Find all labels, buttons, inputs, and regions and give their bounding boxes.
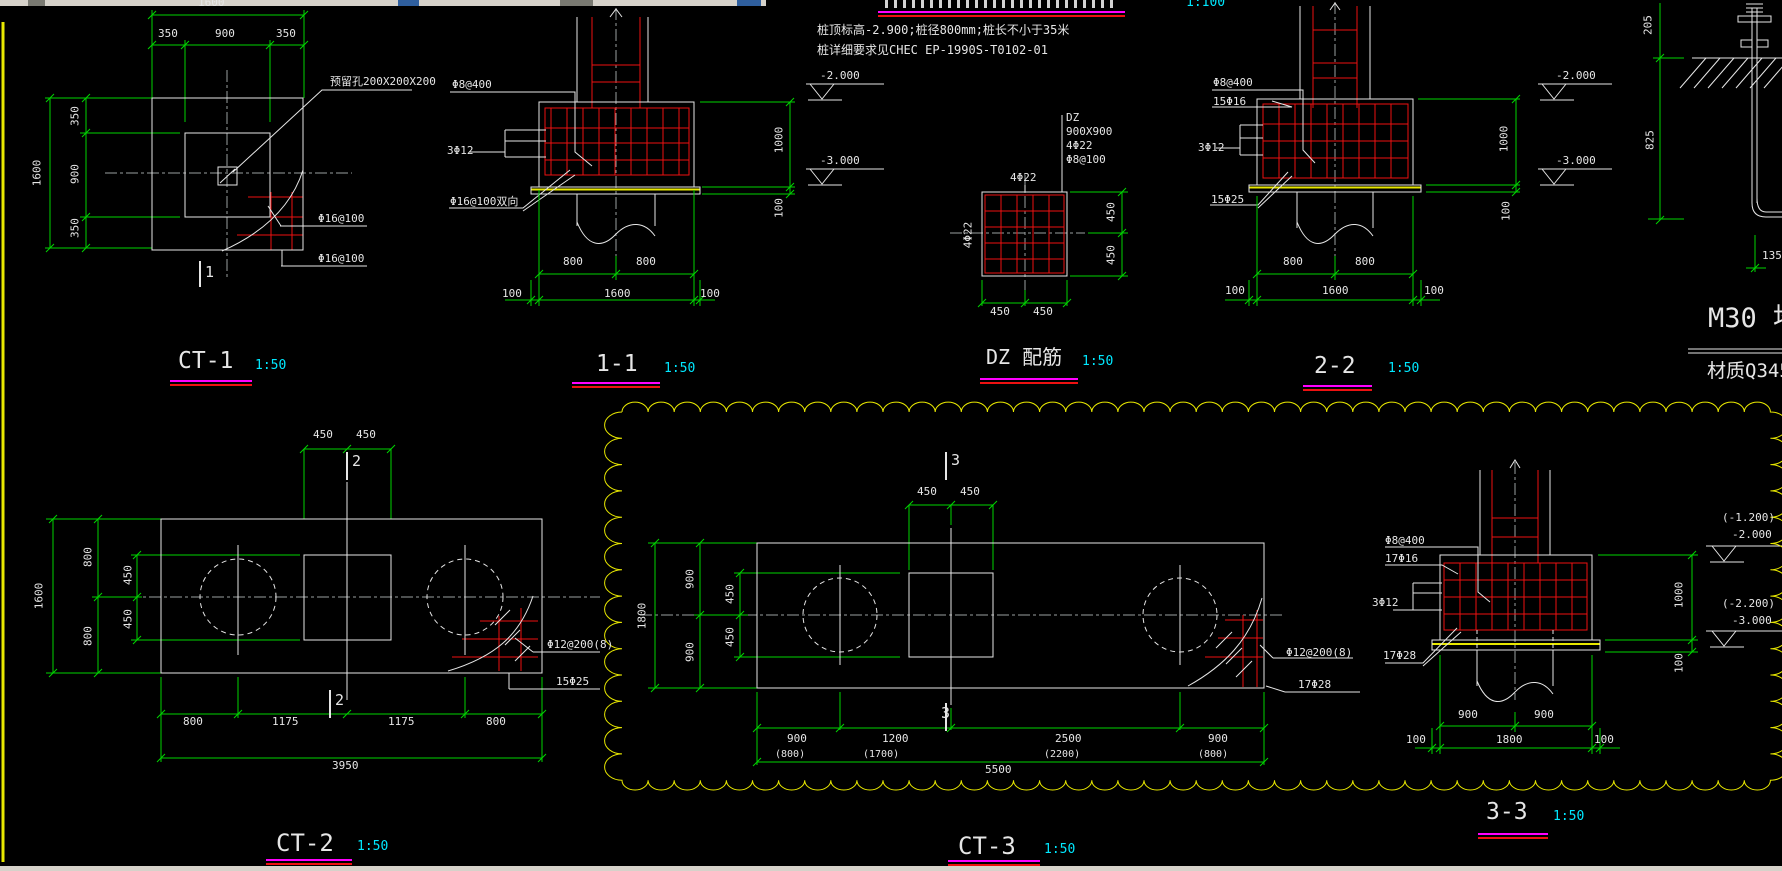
s22-dim-100b: 100	[1424, 285, 1444, 296]
ct3-dim-left-900a: 900	[685, 569, 696, 589]
ct2-dim-top-450b: 450	[356, 429, 376, 440]
bolt-dim-205: 205	[1643, 15, 1654, 35]
s22-label-bottom: 15Φ25	[1211, 194, 1244, 205]
s33-dim-100r: 100	[1674, 653, 1685, 673]
ct3-scale: 1:50	[1044, 843, 1075, 856]
ct3-dim-top-450b: 450	[960, 486, 980, 497]
ct3-section-top: 3	[951, 453, 960, 468]
dz-title: DZ 配筋	[986, 347, 1062, 367]
notes-note-line-1: 桩顶标高-2.900;桩径800mm;桩长不小于35米	[817, 24, 1069, 36]
dz-top-bars: 4Φ22	[1010, 172, 1037, 183]
ct1-section-mark: 1	[205, 265, 214, 280]
dz-left-bars: 4Φ22	[963, 222, 974, 249]
s11-dim-1000: 1000	[774, 127, 785, 154]
ct3-dim-800p2: (800)	[1198, 750, 1228, 760]
dz-callout-bars: 4Φ22	[1066, 140, 1093, 151]
s22-dim-100a: 100	[1225, 285, 1245, 296]
s11-title: 1-1	[596, 353, 638, 376]
ct1-label-hole: 预留孔200X200X200	[330, 76, 436, 87]
s11-dim-800b: 800	[636, 256, 656, 267]
ct1-dim-left-350b: 350	[70, 218, 81, 238]
bolt-title: M30 地脚	[1708, 305, 1782, 332]
ct2-dim-800d: 800	[486, 716, 506, 727]
s22-title: 2-2	[1314, 355, 1356, 378]
ct1-dim-left-900: 900	[70, 164, 81, 184]
s22-elev-3000: -3.000	[1556, 155, 1596, 166]
ct3-dim-total: 5500	[985, 764, 1012, 775]
s33-label-top: 17Φ16	[1385, 553, 1418, 564]
s11-elev-3000: -3.000	[820, 155, 860, 166]
notes-scale-1-100: 1:100	[1186, 0, 1225, 9]
ct2-title: CT-2	[276, 831, 334, 855]
s11-elev-2000: -2.000	[820, 70, 860, 81]
bolt-dim-825: 825	[1645, 130, 1656, 150]
ct2-dim-1175a: 1175	[272, 716, 299, 727]
s33-label-3d12: 3Φ12	[1372, 597, 1399, 608]
ct3-dim-left-450b: 450	[725, 627, 736, 647]
ct3-title: CT-3	[958, 834, 1016, 858]
dz-dim-450-b1: 450	[990, 306, 1010, 317]
ct1-dim-left-350a: 350	[70, 106, 81, 126]
s33-dim-900a: 900	[1458, 709, 1478, 720]
ct1-label-rebar-1: Φ16@100	[318, 213, 364, 224]
ct2-section-top: 2	[352, 454, 361, 469]
notes-note-line-2: 桩详细要求见CHEC EP-1990S-T0102-01	[817, 44, 1048, 56]
s11-dim-1600: 1600	[604, 288, 631, 299]
s33-elev-b1: (-2.200)	[1722, 598, 1775, 609]
ct2-dim-left-450b: 450	[123, 609, 134, 629]
ct3-dim-left-900b: 900	[685, 642, 696, 662]
ct2-dim-top-450a: 450	[313, 429, 333, 440]
s22-dim-800a: 800	[1283, 256, 1303, 267]
ct2-scale: 1:50	[357, 840, 388, 853]
ct3-dim-top-450a: 450	[917, 486, 937, 497]
ct1-dim-left-total: 1600	[32, 160, 43, 187]
ct2-dim-800c: 800	[183, 716, 203, 727]
s22-label-3d12: 3Φ12	[1198, 142, 1225, 153]
ct3-dim-900b: 900	[1208, 733, 1228, 744]
ct2-dim-left-450a: 450	[123, 565, 134, 585]
s33-elev-a2: -2.000	[1732, 529, 1772, 540]
dz-callout-name: DZ	[1066, 112, 1079, 123]
dz-dim-450-r2: 450	[1106, 245, 1117, 265]
s33-title: 3-3	[1486, 801, 1528, 824]
ct3-dim-left-450a: 450	[725, 584, 736, 604]
s22-label-stirrup: Φ8@400	[1213, 77, 1253, 88]
bolt-material: 材质Q345	[1707, 362, 1782, 381]
s11-dim-800a: 800	[563, 256, 583, 267]
s11-dim-100b: 100	[700, 288, 720, 299]
s33-dim-100a: 100	[1406, 734, 1426, 745]
s22-elev-2000: -2.000	[1556, 70, 1596, 81]
cad-drawing-canvas: 1:100桩顶标高-2.900;桩径800mm;桩长不小于35米桩详细要求见CH…	[0, 0, 1782, 871]
ct3-label-bottom: 17Φ28	[1298, 679, 1331, 690]
s33-label-stirrup: Φ8@400	[1385, 535, 1425, 546]
s33-dim-100b: 100	[1594, 734, 1614, 745]
annotation-layer: 1:100桩顶标高-2.900;桩径800mm;桩长不小于35米桩详细要求见CH…	[0, 0, 1782, 871]
s11-label-stirrup: Φ8@400	[452, 79, 492, 90]
ct2-dim-left-800b: 800	[83, 626, 94, 646]
dz-scale: 1:50	[1082, 355, 1113, 368]
s22-scale: 1:50	[1388, 362, 1419, 375]
s33-dim-900b: 900	[1534, 709, 1554, 720]
s22-label-top: 15Φ16	[1213, 96, 1246, 107]
ct2-label-bottom: 15Φ25	[556, 676, 589, 687]
ct3-dim-800p1: (800)	[775, 750, 805, 760]
ct3-label-stirrup: Φ12@200(8)	[1286, 647, 1352, 658]
s33-label-bottom: 17Φ28	[1383, 650, 1416, 661]
s11-label-bottom: Φ16@100双向	[450, 196, 518, 207]
s22-dim-1600: 1600	[1322, 285, 1349, 296]
ct1-dim-top-350a: 350	[158, 28, 178, 39]
ct3-dim-2200p: (2200)	[1044, 750, 1080, 760]
s33-dim-1000: 1000	[1674, 582, 1685, 609]
s22-dim-800b: 800	[1355, 256, 1375, 267]
ct3-section-bottom: 3	[941, 706, 950, 721]
ct2-dim-left-total: 1600	[34, 583, 45, 610]
s11-dim-100a: 100	[502, 288, 522, 299]
s33-scale: 1:50	[1553, 810, 1584, 823]
ct3-dim-2500: 2500	[1055, 733, 1082, 744]
s22-dim-100r: 100	[1501, 201, 1512, 221]
ct3-dim-900a: 900	[787, 733, 807, 744]
ct2-dim-left-800a: 800	[83, 547, 94, 567]
ct3-dim-left-total: 1800	[637, 603, 648, 630]
ct2-dim-total: 3950	[332, 760, 359, 771]
ct3-dim-1700p: (1700)	[863, 750, 899, 760]
ct1-dim-top-total: 1600	[198, 0, 225, 8]
ct3-dim-1200: 1200	[882, 733, 909, 744]
s11-dim-100r: 100	[774, 198, 785, 218]
s22-dim-1000: 1000	[1499, 126, 1510, 153]
dz-dim-450-b2: 450	[1033, 306, 1053, 317]
ct1-scale: 1:50	[255, 359, 286, 372]
dz-callout-size: 900X900	[1066, 126, 1112, 137]
ct2-section-bottom: 2	[335, 693, 344, 708]
s33-elev-a1: (-1.200)	[1722, 512, 1775, 523]
s11-scale: 1:50	[664, 362, 695, 375]
ct1-dim-top-350b: 350	[276, 28, 296, 39]
bolt-dim-135: 135	[1762, 250, 1782, 261]
ct1-label-rebar-2: Φ16@100	[318, 253, 364, 264]
ct2-dim-1175b: 1175	[388, 716, 415, 727]
s11-label-3d12: 3Φ12	[447, 145, 474, 156]
dz-dim-450-r1: 450	[1106, 202, 1117, 222]
dz-callout-stirrup: Φ8@100	[1066, 154, 1106, 165]
s33-dim-1800: 1800	[1496, 734, 1523, 745]
ct2-label-stirrup: Φ12@200(8)	[547, 639, 613, 650]
ct1-dim-top-900: 900	[215, 28, 235, 39]
s33-elev-b2: -3.000	[1732, 615, 1772, 626]
ct1-title: CT-1	[178, 350, 233, 373]
